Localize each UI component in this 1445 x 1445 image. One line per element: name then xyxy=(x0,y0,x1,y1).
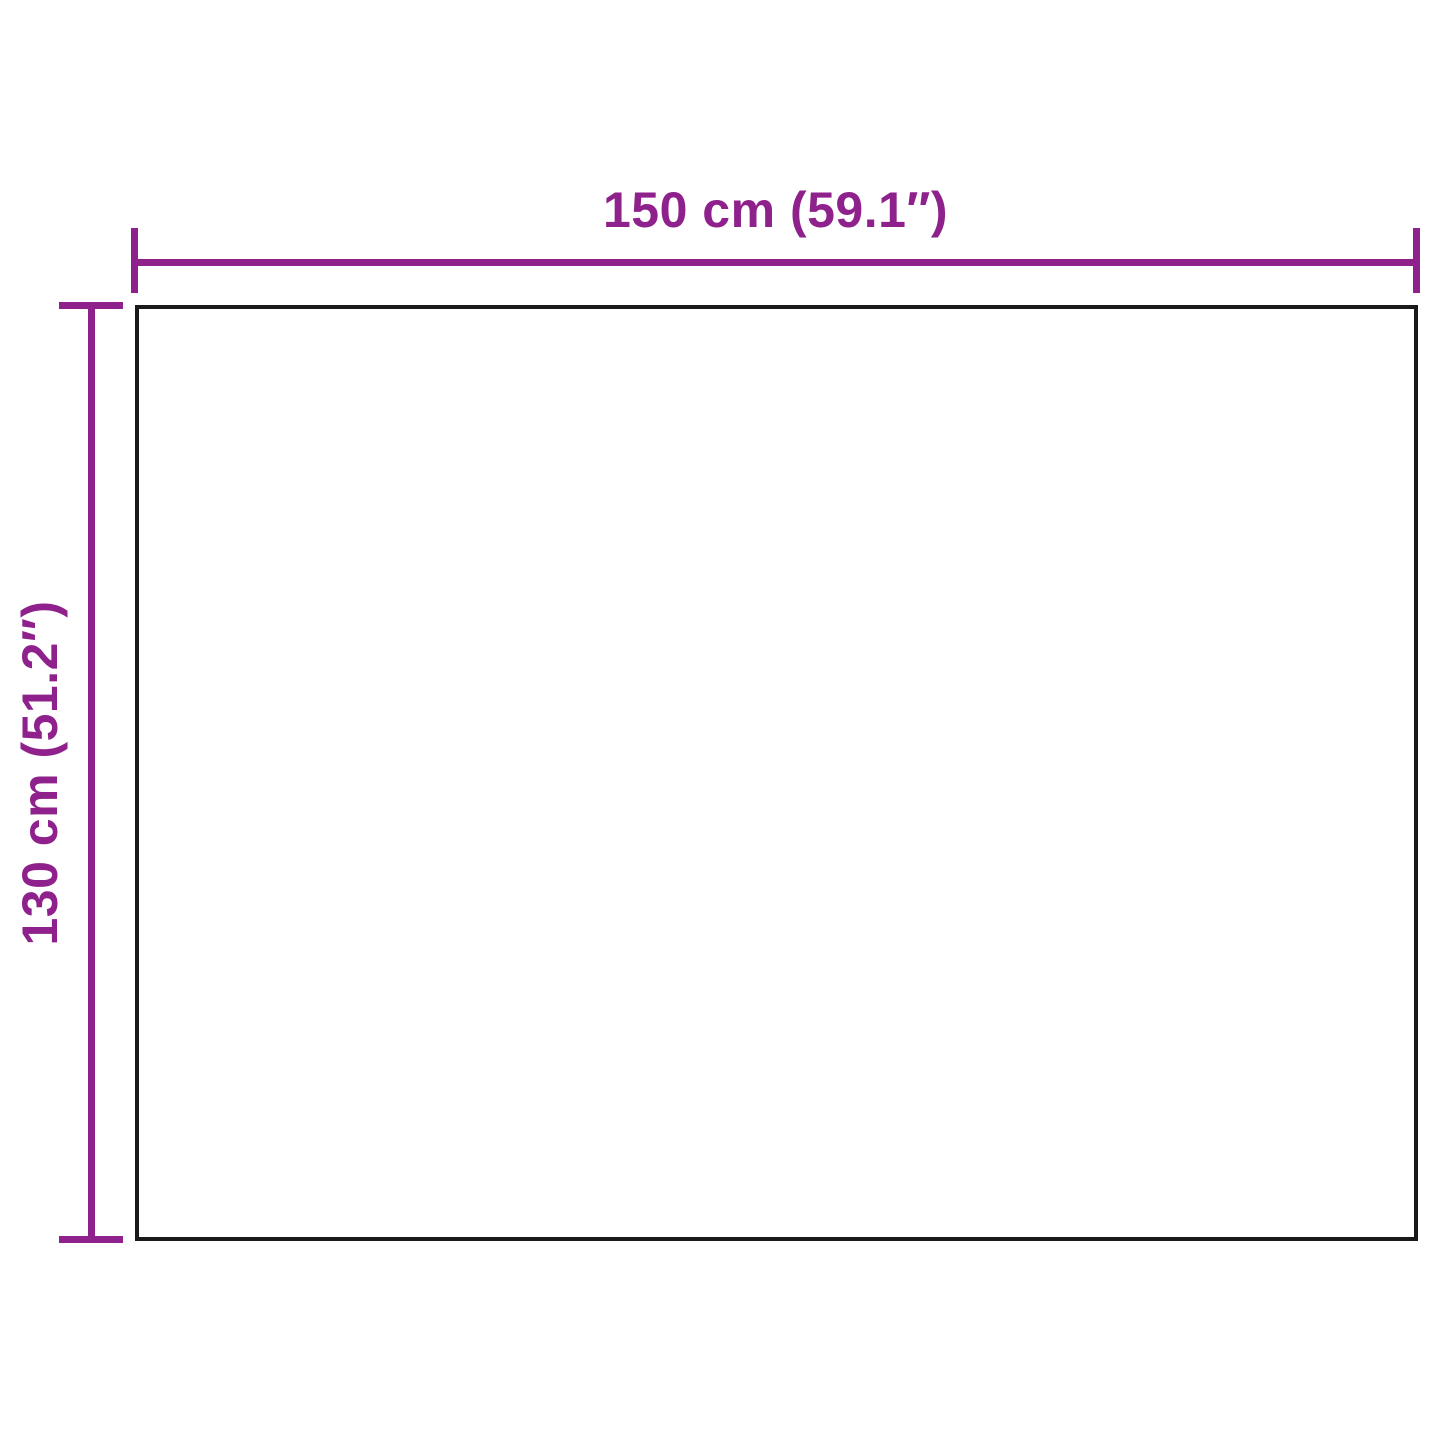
width-dimension-label: 150 cm (59.1″) xyxy=(134,181,1417,239)
height-dimension-bottom-cap xyxy=(59,1236,123,1243)
dimension-diagram: 150 cm (59.1″) 130 cm (51.2″) xyxy=(0,0,1445,1445)
height-dimension-label: 130 cm (51.2″) xyxy=(11,600,69,945)
height-dimension-top-cap xyxy=(59,302,123,309)
product-outline xyxy=(135,305,1418,1241)
height-dimension-line xyxy=(88,305,95,1241)
width-dimension-line xyxy=(134,259,1417,266)
